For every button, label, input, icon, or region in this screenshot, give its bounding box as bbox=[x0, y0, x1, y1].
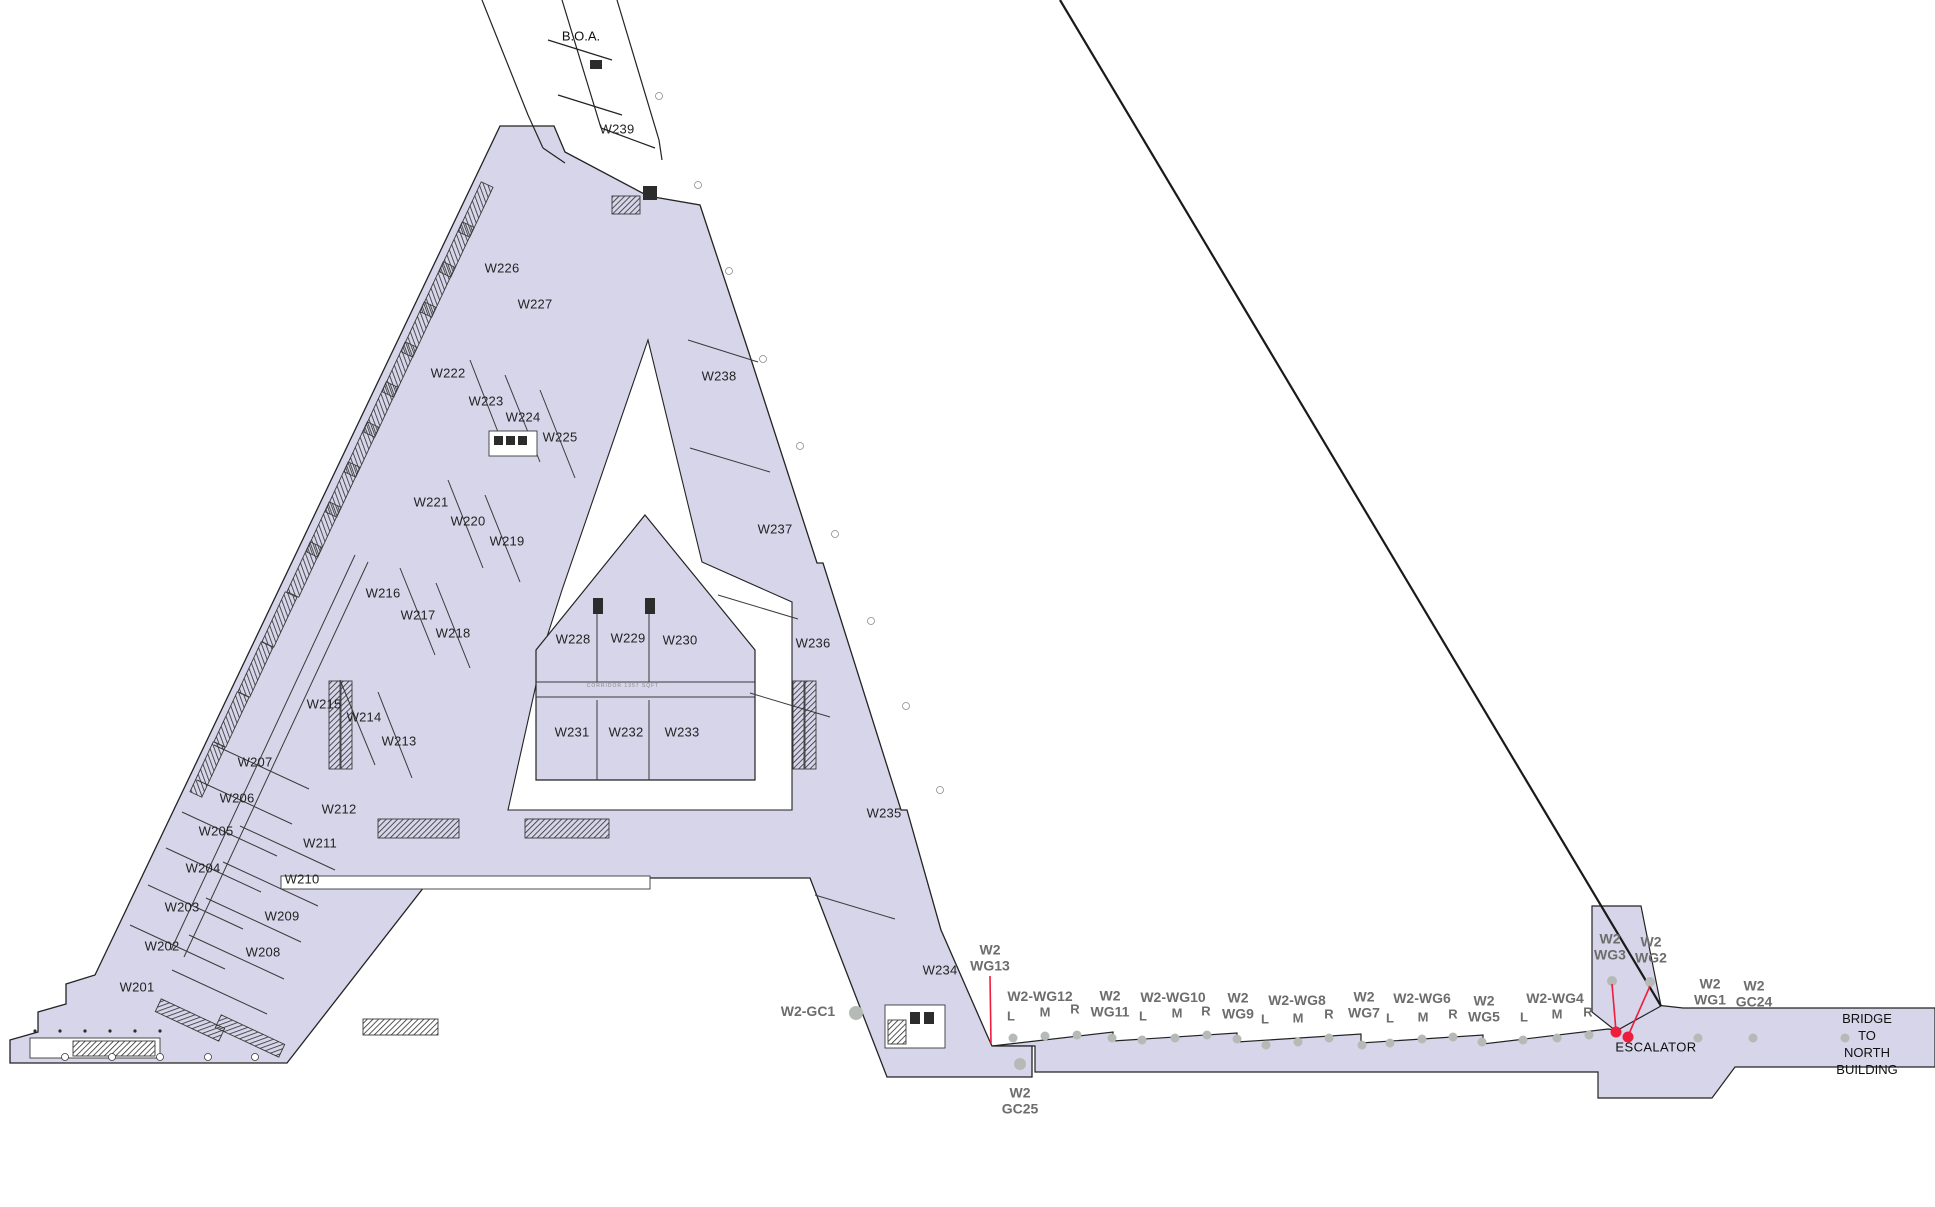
column-dot bbox=[1009, 1034, 1018, 1043]
wall-line bbox=[617, 0, 659, 140]
escalator-location-dot bbox=[1623, 1032, 1634, 1043]
column-dot bbox=[252, 1054, 259, 1061]
wall-line bbox=[482, 0, 528, 115]
column-dot bbox=[157, 1054, 164, 1061]
column-dot bbox=[1478, 1038, 1487, 1047]
structure-rect bbox=[506, 436, 515, 445]
column-dot bbox=[1585, 1031, 1594, 1040]
column-dot bbox=[1294, 1038, 1303, 1047]
column-dot bbox=[1386, 1039, 1395, 1048]
column-dot bbox=[1233, 1035, 1242, 1044]
wall-line bbox=[659, 140, 662, 160]
column-dot bbox=[33, 1029, 36, 1032]
column-dot bbox=[937, 787, 944, 794]
column-dot bbox=[1171, 1034, 1180, 1043]
column-dot bbox=[1041, 1032, 1050, 1041]
wall-line bbox=[990, 976, 991, 1043]
structure-rect bbox=[805, 681, 816, 769]
a-building-outline bbox=[10, 126, 1032, 1077]
column-dot bbox=[868, 618, 875, 625]
column-dot bbox=[58, 1029, 61, 1032]
structure-rect bbox=[910, 1012, 920, 1024]
column-dot bbox=[903, 703, 910, 710]
column-dot bbox=[1749, 1034, 1758, 1043]
column-dot bbox=[1418, 1035, 1427, 1044]
column-dot bbox=[849, 1006, 863, 1020]
column-dot bbox=[1449, 1033, 1458, 1042]
column-dot bbox=[158, 1029, 161, 1032]
structure-rect bbox=[329, 681, 340, 769]
column-dot bbox=[1014, 1058, 1026, 1070]
escalator-location-dot bbox=[1611, 1027, 1622, 1038]
column-dot bbox=[108, 1029, 111, 1032]
wall-line bbox=[601, 128, 655, 148]
column-dot bbox=[1694, 1034, 1703, 1043]
column-dot bbox=[1138, 1036, 1147, 1045]
wall-line bbox=[1060, 0, 1661, 1006]
column-dot bbox=[832, 531, 839, 538]
structure-rect bbox=[793, 681, 804, 769]
column-dot bbox=[1108, 1034, 1117, 1043]
column-dot bbox=[205, 1054, 212, 1061]
structure-rect bbox=[378, 819, 459, 838]
column-dot bbox=[62, 1054, 69, 1061]
wall-line bbox=[548, 40, 612, 60]
column-dot bbox=[83, 1029, 86, 1032]
wg3-wedge bbox=[1592, 906, 1661, 1031]
column-dot bbox=[1325, 1034, 1334, 1043]
corridor-band bbox=[992, 1000, 1935, 1098]
column-dot bbox=[760, 356, 767, 363]
structure-rect bbox=[593, 598, 603, 614]
structure-rect bbox=[590, 60, 602, 69]
column-dot bbox=[109, 1054, 116, 1061]
structure-rect bbox=[363, 1019, 438, 1035]
structure-rect bbox=[518, 436, 527, 445]
column-dot bbox=[1841, 1034, 1850, 1043]
structure-rect bbox=[924, 1012, 934, 1024]
column-dot bbox=[133, 1029, 136, 1032]
wall-line bbox=[558, 95, 622, 115]
structure-rect bbox=[281, 876, 650, 889]
structure-rect bbox=[643, 186, 657, 200]
structure-rect bbox=[645, 598, 655, 614]
column-dot bbox=[1073, 1031, 1082, 1040]
column-dot bbox=[1203, 1031, 1212, 1040]
floor-plan: B.O.A. ESCALATOR BRIDGE TO NORTH BUILDIN… bbox=[0, 0, 1935, 1207]
structure-rect bbox=[341, 681, 352, 769]
column-dot bbox=[726, 268, 733, 275]
column-dot bbox=[1645, 977, 1655, 987]
column-dot bbox=[1553, 1034, 1562, 1043]
structure-rect bbox=[612, 196, 640, 214]
structure-rect bbox=[888, 1020, 906, 1044]
column-dot bbox=[1358, 1041, 1367, 1050]
floor-plan-drawing bbox=[0, 0, 1935, 1207]
column-dot bbox=[656, 93, 663, 100]
column-dot bbox=[1519, 1036, 1528, 1045]
column-dot bbox=[695, 182, 702, 189]
structure-rect bbox=[494, 436, 503, 445]
column-dot bbox=[1262, 1041, 1271, 1050]
column-dot bbox=[797, 443, 804, 450]
structure-rect bbox=[525, 819, 609, 838]
